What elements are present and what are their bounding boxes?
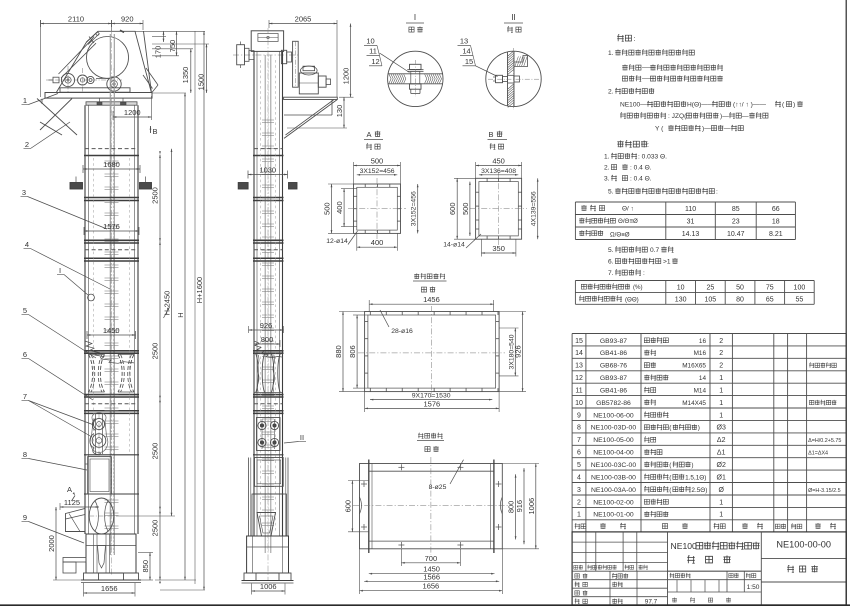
svg-text:Y (: Y ( <box>655 126 664 133</box>
svg-text:3: 3 <box>577 487 581 494</box>
svg-text:H(Θ)——: H(Θ)—— <box>687 102 715 109</box>
svg-text:926: 926 <box>260 321 273 330</box>
svg-text:600: 600 <box>343 500 352 513</box>
svg-text:11: 11 <box>369 47 377 56</box>
svg-text:1500: 1500 <box>197 74 206 91</box>
svg-text:14-ø14: 14-ø14 <box>443 242 465 249</box>
svg-text:0.7: 0.7 <box>650 247 659 254</box>
svg-text:: 0.4 Θ.: : 0.4 Θ. <box>630 176 652 183</box>
svg-text:1006: 1006 <box>527 498 536 515</box>
svg-text:600: 600 <box>448 202 457 215</box>
svg-text:6.: 6. <box>608 259 614 266</box>
svg-text:7: 7 <box>577 437 581 444</box>
svg-text:66: 66 <box>772 206 780 213</box>
svg-text:—: — <box>742 113 749 120</box>
svg-text:3: 3 <box>22 188 26 197</box>
svg-text:Δ2: Δ2 <box>717 437 726 444</box>
svg-text:1576: 1576 <box>103 222 120 231</box>
svg-text:14: 14 <box>575 350 583 357</box>
svg-text:NE100-06-00: NE100-06-00 <box>593 412 634 419</box>
svg-text:5.: 5. <box>608 189 614 196</box>
svg-text:800: 800 <box>261 335 274 344</box>
svg-text:NE100: NE100 <box>671 541 697 551</box>
svg-text:GB5782-86: GB5782-86 <box>596 400 631 407</box>
svg-text:(%): (%) <box>633 284 643 291</box>
svg-text:15: 15 <box>575 338 583 345</box>
svg-text:2: 2 <box>719 338 723 345</box>
svg-text:)—: )— <box>720 113 729 120</box>
svg-text:3X152=456: 3X152=456 <box>411 191 418 226</box>
svg-text:: JZQ(: : JZQ( <box>668 113 687 120</box>
svg-text:(↑↑/ ↑ )——: (↑↑/ ↑ )—— <box>733 102 766 109</box>
svg-text:1030: 1030 <box>259 166 276 175</box>
svg-text:1:50: 1:50 <box>747 584 760 591</box>
svg-text:1456: 1456 <box>423 295 440 304</box>
svg-text:Θ/ ↑: Θ/ ↑ <box>622 206 634 213</box>
svg-text:750: 750 <box>168 40 177 53</box>
svg-text:Θ/Θ≡Ø: Θ/Θ≡Ø <box>618 218 638 225</box>
svg-text:): ) <box>691 462 693 469</box>
svg-text:M14: M14 <box>694 388 707 395</box>
svg-text:350: 350 <box>492 244 505 253</box>
svg-text:8-ø25: 8-ø25 <box>429 484 447 491</box>
svg-text:7: 7 <box>23 392 27 401</box>
svg-text::: : <box>647 142 649 149</box>
svg-text::: : <box>643 270 645 277</box>
svg-text::: : <box>716 189 718 196</box>
svg-text:M16X65: M16X65 <box>682 363 706 370</box>
svg-text:2.: 2. <box>604 165 610 172</box>
svg-text:10.47: 10.47 <box>727 231 745 238</box>
svg-text:Ω/Θ≡Ø: Ω/Θ≡Ø <box>610 232 630 239</box>
svg-text:2: 2 <box>25 140 29 149</box>
svg-text:GB93-87: GB93-87 <box>600 338 627 345</box>
svg-text:NE100-02-00: NE100-02-00 <box>593 499 634 506</box>
svg-text:1450: 1450 <box>103 326 120 335</box>
svg-text:880: 880 <box>334 345 343 358</box>
svg-text:5.: 5. <box>608 247 614 254</box>
svg-text:1: 1 <box>577 512 581 519</box>
svg-text:500: 500 <box>371 157 384 166</box>
svg-text:10: 10 <box>677 284 685 291</box>
svg-text:2065: 2065 <box>295 15 312 24</box>
svg-text:II: II <box>511 13 515 22</box>
svg-text:130: 130 <box>335 105 344 118</box>
svg-text:1656: 1656 <box>423 582 440 591</box>
svg-text:7.: 7. <box>608 270 614 277</box>
svg-text:50: 50 <box>736 284 744 291</box>
svg-text:1656: 1656 <box>101 584 118 593</box>
svg-text:1680: 1680 <box>103 160 120 169</box>
svg-text:110: 110 <box>685 206 696 213</box>
svg-text:2000: 2000 <box>47 535 56 552</box>
svg-text:16: 16 <box>699 338 707 345</box>
svg-text:1: 1 <box>719 400 723 407</box>
svg-text:Ø3: Ø3 <box>717 425 726 432</box>
svg-text:NE100-03C-00: NE100-03C-00 <box>591 462 637 469</box>
svg-text:—: — <box>724 126 731 133</box>
svg-text:6: 6 <box>23 350 27 359</box>
svg-text:——: —— <box>642 77 654 83</box>
svg-text:1200: 1200 <box>124 108 141 117</box>
svg-text:1350: 1350 <box>181 67 190 84</box>
svg-text:II: II <box>300 433 304 442</box>
svg-text:4: 4 <box>577 474 581 481</box>
svg-text:10: 10 <box>575 400 583 407</box>
svg-text:920: 920 <box>121 15 134 24</box>
svg-text:1: 1 <box>719 412 723 419</box>
svg-text:1576: 1576 <box>424 399 441 408</box>
svg-text:700: 700 <box>425 554 438 563</box>
svg-text:>1: >1 <box>663 259 671 266</box>
svg-text:): ) <box>698 425 700 432</box>
svg-text:2.: 2. <box>608 89 614 96</box>
svg-text:500: 500 <box>323 202 332 215</box>
svg-text:3X136=408: 3X136=408 <box>481 168 516 175</box>
svg-text:3X152=456: 3X152=456 <box>360 168 395 175</box>
svg-text:M16: M16 <box>694 350 707 357</box>
svg-text:2: 2 <box>719 363 723 370</box>
svg-text:12: 12 <box>575 375 583 382</box>
svg-text:NE100-01-00: NE100-01-00 <box>593 512 634 519</box>
svg-text:NE100-04-00: NE100-04-00 <box>593 450 634 457</box>
svg-text:8: 8 <box>23 450 27 459</box>
svg-text:: 0.033 Θ.: : 0.033 Θ. <box>638 154 667 161</box>
svg-text:31: 31 <box>687 218 695 225</box>
svg-text:500: 500 <box>461 203 470 216</box>
svg-text:450: 450 <box>492 157 505 166</box>
svg-text:11: 11 <box>575 388 582 395</box>
svg-text:GB93-87: GB93-87 <box>600 375 627 382</box>
svg-text:M14X45: M14X45 <box>682 400 706 407</box>
svg-text:28-ø16: 28-ø16 <box>391 328 413 335</box>
svg-text:75: 75 <box>766 284 774 291</box>
svg-text:: 0.4 Θ.: : 0.4 Θ. <box>630 165 652 172</box>
svg-text::: : <box>634 36 636 43</box>
svg-text:105: 105 <box>705 296 717 303</box>
svg-text:(ΘΘ): (ΘΘ) <box>625 297 639 304</box>
svg-text:100: 100 <box>794 284 806 291</box>
svg-text:806: 806 <box>348 345 357 358</box>
svg-text:A: A <box>67 485 72 494</box>
svg-text:2: 2 <box>719 350 723 357</box>
svg-text:2.5Θ): 2.5Θ) <box>691 487 707 494</box>
svg-text:12-ø14: 12-ø14 <box>326 238 348 245</box>
svg-text:926: 926 <box>514 345 523 358</box>
svg-text:2500: 2500 <box>151 343 160 360</box>
svg-text:NE100-03B-00: NE100-03B-00 <box>591 474 636 481</box>
svg-text:9: 9 <box>577 412 581 419</box>
svg-text:): ) <box>793 102 795 109</box>
svg-text:12: 12 <box>371 57 379 66</box>
svg-text:1200: 1200 <box>342 68 351 85</box>
svg-text:Ø2: Ø2 <box>717 462 726 469</box>
svg-text:4X139=556: 4X139=556 <box>531 191 538 226</box>
svg-text:Δ1=ΔX4: Δ1=ΔX4 <box>808 451 828 457</box>
svg-text:8: 8 <box>577 425 581 432</box>
svg-text:1566: 1566 <box>423 572 440 581</box>
svg-text:B: B <box>152 127 157 136</box>
svg-text:65: 65 <box>766 296 774 303</box>
svg-text:GB68-76: GB68-76 <box>600 363 627 370</box>
svg-text:3.: 3. <box>604 176 610 183</box>
svg-text:18: 18 <box>772 218 780 225</box>
svg-text:13: 13 <box>575 363 583 370</box>
svg-text:NE100-03A-00: NE100-03A-00 <box>591 487 636 494</box>
svg-text:4: 4 <box>25 240 29 249</box>
svg-text:1.5,1Θ): 1.5,1Θ) <box>685 474 706 481</box>
svg-text:25: 25 <box>706 284 714 291</box>
svg-text:I: I <box>414 13 416 22</box>
svg-text:Ø: Ø <box>718 487 724 494</box>
svg-text:Δ1: Δ1 <box>717 450 726 457</box>
svg-text:5: 5 <box>23 306 27 315</box>
svg-text:23: 23 <box>732 218 740 225</box>
svg-text:15: 15 <box>465 57 473 66</box>
svg-text:1125: 1125 <box>64 498 80 507</box>
svg-text:NE100-05-00: NE100-05-00 <box>593 437 634 444</box>
svg-text:B: B <box>488 130 493 139</box>
svg-text:1: 1 <box>23 96 27 105</box>
svg-text:2: 2 <box>577 499 581 506</box>
svg-text:916: 916 <box>515 500 524 513</box>
svg-text:13: 13 <box>460 37 468 46</box>
svg-text:Ø=H-3.15/2.5: Ø=H-3.15/2.5 <box>808 488 841 494</box>
svg-text:6: 6 <box>577 450 581 457</box>
svg-text:2110: 2110 <box>68 15 84 24</box>
svg-text:NE100-03D-00: NE100-03D-00 <box>591 425 637 432</box>
svg-text:14: 14 <box>699 375 707 382</box>
svg-text:1006: 1006 <box>260 582 277 591</box>
svg-text:55: 55 <box>796 296 804 303</box>
svg-text:1.: 1. <box>604 154 610 161</box>
svg-text:80: 80 <box>736 296 744 303</box>
svg-text:NE100-00-00: NE100-00-00 <box>776 540 831 550</box>
svg-text:)—: )— <box>702 126 711 133</box>
svg-text:H-2450: H-2450 <box>163 291 172 316</box>
svg-text:2500: 2500 <box>151 443 160 460</box>
svg-text:2500: 2500 <box>151 520 160 537</box>
svg-text:H: H <box>176 312 185 317</box>
svg-text:GB41-86: GB41-86 <box>600 388 627 395</box>
svg-text:5: 5 <box>577 462 581 469</box>
svg-text:H+1600: H+1600 <box>195 277 204 303</box>
svg-text:1.: 1. <box>608 50 614 57</box>
svg-text:A: A <box>366 130 371 139</box>
svg-text:170: 170 <box>154 46 163 59</box>
svg-text:1: 1 <box>719 512 723 519</box>
svg-text:8.21: 8.21 <box>769 231 783 238</box>
svg-text:14.13: 14.13 <box>682 231 700 238</box>
svg-text:GB41-86: GB41-86 <box>600 350 627 357</box>
svg-text:10: 10 <box>366 37 374 46</box>
svg-text:85: 85 <box>732 206 740 213</box>
svg-text:I: I <box>59 266 61 275</box>
svg-text:400: 400 <box>371 238 384 247</box>
svg-text:14: 14 <box>462 47 470 56</box>
svg-text:400: 400 <box>335 201 344 214</box>
svg-text:9: 9 <box>23 513 27 522</box>
svg-text:Δ=H/0.2+5.75: Δ=H/0.2+5.75 <box>808 438 841 444</box>
svg-text:1: 1 <box>719 388 723 395</box>
svg-text:Ø1: Ø1 <box>717 474 726 481</box>
svg-text:850: 850 <box>141 560 150 573</box>
svg-text:——: —— <box>642 66 654 72</box>
svg-text:130: 130 <box>675 296 687 303</box>
svg-text:2500: 2500 <box>151 187 160 204</box>
svg-text:1: 1 <box>719 375 723 382</box>
svg-text:1: 1 <box>719 499 723 506</box>
